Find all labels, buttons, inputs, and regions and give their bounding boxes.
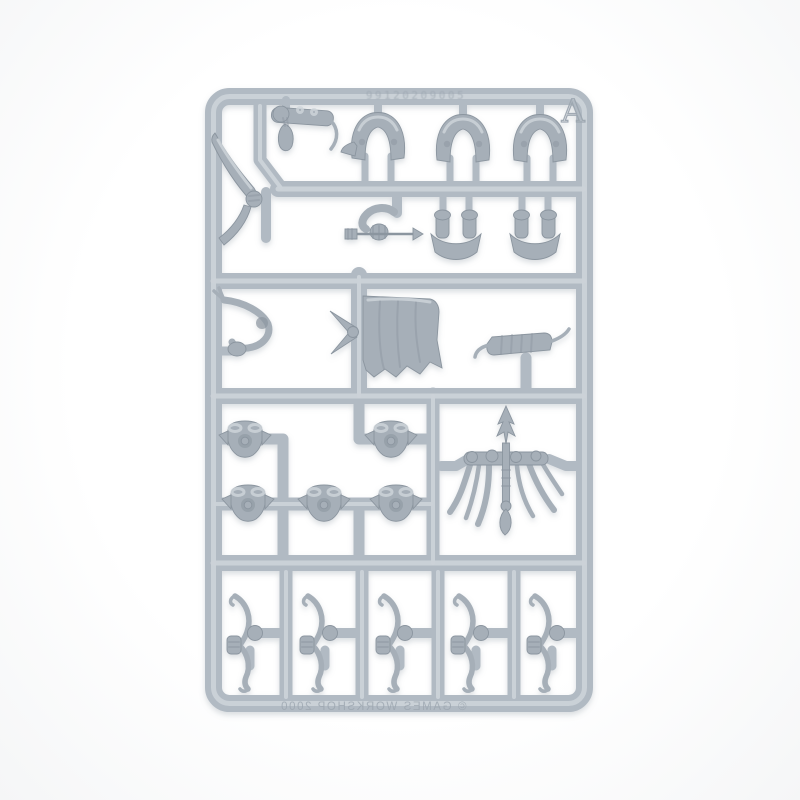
quiver-part: [475, 329, 569, 357]
torso-part-1: [219, 421, 271, 457]
torso-part-2: [365, 421, 417, 457]
arrow-arm-part: [345, 208, 423, 240]
bow-part-2: [300, 596, 322, 691]
legs-part-3: [513, 115, 566, 163]
bow-part-4: [451, 596, 473, 691]
feathered-standard-part: [450, 406, 562, 535]
torso-part-4: [298, 485, 350, 521]
photo-background: 99120209005 A © GAMES WORKSHOP 2000: [0, 0, 800, 800]
bow-part-3: [376, 596, 398, 691]
gate-letter-emboss: A: [560, 92, 585, 130]
bow-part-5: [527, 596, 549, 691]
lower-legs-part-2: [510, 210, 560, 260]
trophy-arm-part: [271, 100, 337, 151]
legs-part-2: [436, 115, 489, 163]
sprue-photo: 99120209005 A © GAMES WORKSHOP 2000: [0, 0, 800, 800]
legs-part-1: [351, 113, 404, 161]
lower-legs-part-1: [431, 210, 481, 260]
bow-part-1: [227, 596, 249, 691]
horn-arm-part: [214, 288, 269, 356]
mold-number-emboss: 99120209005: [366, 89, 466, 102]
legs-part-1-foot: [341, 142, 357, 156]
torso-part-5: [370, 485, 422, 521]
copyright-emboss-group: © GAMES WORKSHOP 2000: [280, 701, 467, 713]
copyright-emboss: © GAMES WORKSHOP 2000: [280, 701, 467, 713]
ragged-cloak-part: [330, 296, 442, 377]
torso-part-3: [222, 485, 274, 521]
